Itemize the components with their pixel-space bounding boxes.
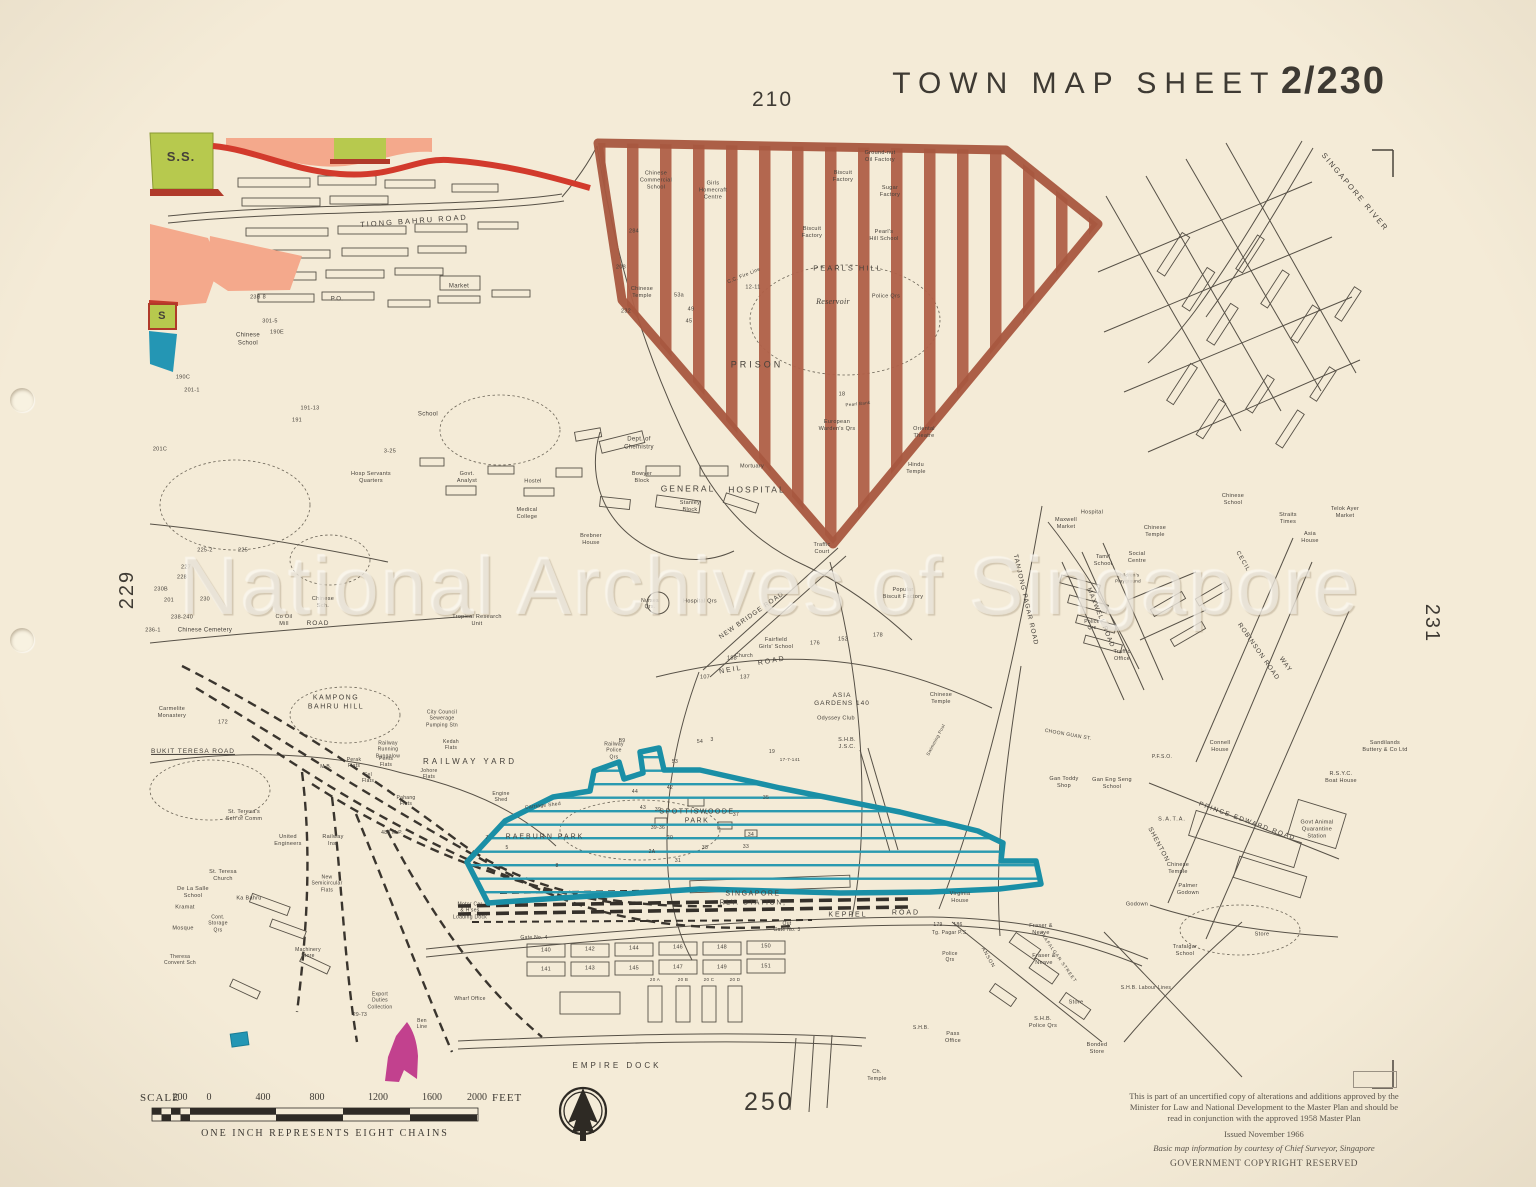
scale-tick: 0 (207, 1092, 212, 1103)
punch-hole (10, 628, 34, 652)
survey-department-logo (556, 1085, 612, 1145)
magenta-zone (385, 1022, 418, 1082)
singapore-river-line (1148, 141, 1313, 363)
scale-tick: 800 (310, 1092, 325, 1103)
note-line: Minister for Law and National Developmen… (1128, 1102, 1400, 1113)
grid-number-left: 229 (116, 570, 139, 609)
copyright-line: GOVERNMENT COPYRIGHT RESERVED (1128, 1158, 1400, 1170)
page-title: TOWN MAP SHEET 2/230 (892, 60, 1386, 103)
scale-tick: 400 (256, 1092, 271, 1103)
salmon-zone-mid (207, 236, 302, 291)
corner-tick-top-right (1368, 144, 1402, 180)
grid-number-top: 210 (752, 88, 793, 112)
map-linework (0, 0, 1536, 1187)
note-line: read in conjunction with the approved 19… (1128, 1113, 1400, 1124)
scale-tick: 1200 (368, 1092, 388, 1103)
grid-number-right: 231 (1420, 604, 1443, 643)
scale-tick: 2000 (467, 1092, 487, 1103)
issued-date: Issued November 1966 (1128, 1129, 1400, 1140)
green-zone-2 (334, 138, 386, 159)
green-zone-ss (150, 133, 213, 189)
map-sheet: S.S.STIONG BAHRU ROADMarketP.O.23B 8301-… (0, 0, 1536, 1187)
red-underline-2 (330, 159, 390, 164)
copyright-notes: This is part of an uncertified copy of a… (1128, 1091, 1400, 1170)
scale-bar (151, 1107, 481, 1123)
red-band (150, 189, 224, 196)
blue-zone-small (230, 1032, 249, 1047)
scale-tick: 200 (173, 1092, 188, 1103)
title-text: TOWN MAP SHEET (892, 67, 1276, 100)
scale-unit: FEET (492, 1092, 522, 1104)
blue-zone-left (149, 331, 177, 372)
note-line: This is part of an uncertified copy of a… (1128, 1091, 1400, 1102)
title-sheet-number: 2/230 (1281, 60, 1386, 102)
spottiswoode-raeburn-zone (467, 748, 1041, 903)
stamp-box (1353, 1071, 1397, 1088)
punch-hole (10, 388, 34, 412)
scale-tick: 1600 (422, 1092, 442, 1103)
pearls-hill-prison-zone (598, 143, 1098, 544)
green-zone-s (149, 304, 176, 329)
grid-number-bottom: 250 (744, 1088, 795, 1117)
credit-line: Basic map information by courtesy of Chi… (1128, 1143, 1400, 1154)
scale-caption: ONE INCH REPRESENTS EIGHT CHAINS (160, 1128, 490, 1139)
